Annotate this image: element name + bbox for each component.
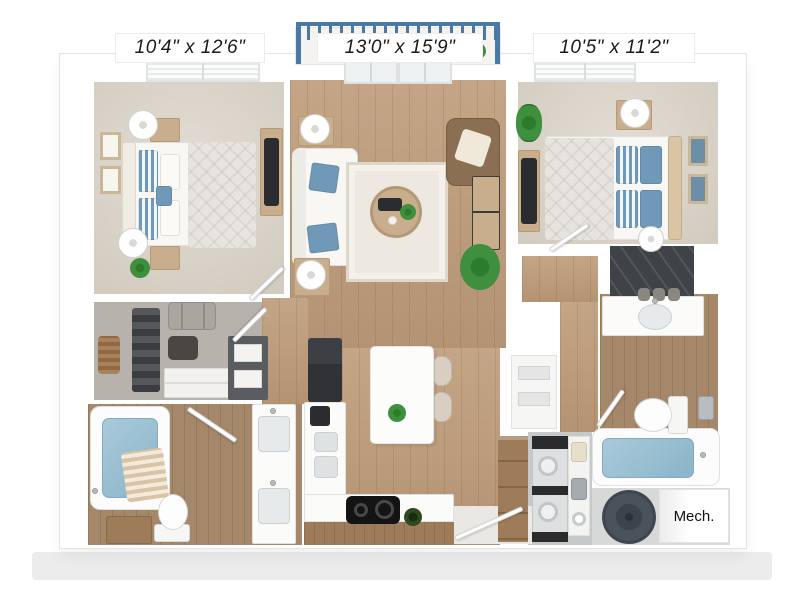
faucet-vanity-2 [652, 298, 658, 304]
bed-left-pillow-accent [156, 186, 172, 206]
bed-left-duvet [188, 142, 256, 248]
bed-right-duvet [545, 138, 614, 240]
bathtub-2-faucet [700, 452, 706, 458]
laundry-hose-outlet [572, 512, 586, 526]
plant-bedroom-right [516, 104, 542, 142]
washer-dryer-band-top [532, 436, 568, 449]
closet-suitcase [168, 302, 216, 330]
plant-by-stove [404, 508, 422, 526]
wall-art-left-2 [100, 166, 121, 194]
stove-burner-large [375, 500, 394, 519]
lamp-right-top [620, 98, 650, 128]
wall-art-right-1 [688, 136, 708, 166]
pantry-cabinet [498, 436, 528, 542]
linen-closet-right-shelf-1 [518, 366, 550, 380]
closet-hanging-clothes [132, 308, 160, 392]
closet-right-shoe-1 [638, 288, 650, 301]
coffee-table-tray [378, 198, 402, 211]
closet-basket [98, 336, 120, 374]
plant-living-corner [460, 244, 500, 290]
balcony-rail-right [495, 22, 500, 64]
lamp-right-bottom [638, 226, 664, 252]
nightstand-left-bottom [150, 246, 180, 270]
vanity-1-sink-top [258, 416, 290, 452]
floor-plan: 10'4" x 12'6" 13'0" x 15'9" 10'5" x 11'2… [0, 0, 800, 600]
faucet-vanity-1-bottom [270, 480, 276, 486]
lamp-left-top [128, 110, 158, 140]
lamp-living-top [300, 114, 330, 144]
kitchen-island [370, 346, 434, 444]
bathtub-2-water [602, 438, 694, 478]
sofa-back [292, 148, 306, 266]
bath-2-wall-cabinet [698, 396, 714, 420]
lamp-living-bottom [296, 260, 326, 290]
coffee-table-plant [400, 204, 416, 220]
coffee-maker [310, 406, 330, 426]
toilet-2-bowl [634, 398, 672, 432]
linen-closet-right-shelf-2 [518, 392, 550, 406]
tv-bedroom-right [521, 158, 537, 224]
bed-right-pillow-blue-1 [640, 146, 662, 184]
dryer-door [538, 502, 558, 522]
coffee-table-candle [388, 216, 397, 225]
detergent-box-1 [571, 442, 587, 462]
closet-seat [168, 336, 198, 360]
dimension-tab-bedroom-left: 10'4" x 12'6" [116, 34, 264, 62]
bed-right-pillow-blue-2 [640, 190, 662, 228]
washer-dryer-band-middle [532, 486, 568, 495]
toilet-1-bowl [158, 494, 188, 530]
linen-closet-hall-box-1 [234, 344, 262, 362]
wall-art-right-2 [688, 174, 708, 204]
water-heater [602, 490, 656, 544]
sofa-pillow-1 [308, 162, 340, 194]
floor-hall-left [262, 298, 308, 404]
bed-right-headboard [668, 136, 682, 240]
stove-burner-small [354, 503, 368, 517]
sofa-pillow-2 [306, 222, 339, 253]
dimension-label-bedroom-left: 10'4" x 12'6" [135, 37, 246, 59]
mech-label: Mech. [674, 508, 715, 525]
bath-1-bench [106, 516, 152, 544]
bed-right-pillow-striped-2 [616, 190, 638, 228]
island-plant [388, 404, 406, 422]
dimension-tab-bedroom-right: 10'5" x 11'2" [534, 34, 694, 62]
bar-stool-1 [434, 356, 452, 386]
floor-hall-upper-right [522, 256, 598, 302]
linen-closet-hall-box-2 [234, 370, 262, 388]
console-table [472, 176, 500, 250]
dimension-label-bedroom-right: 10'5" x 11'2" [559, 37, 668, 59]
kitchen-cabinet-front [304, 522, 454, 545]
mech-label-box: Mech. [660, 490, 728, 542]
closet-drawer-unit [164, 368, 230, 398]
ground-shadow [32, 552, 772, 580]
bar-stool-2 [434, 392, 452, 422]
kitchen-sink-basin-2 [314, 456, 338, 478]
balcony-rail-left [296, 22, 301, 64]
bed-left-pillow-striped-1 [138, 150, 158, 192]
plant-bedroom-left [130, 258, 150, 278]
kitchen-sink-basin-1 [314, 432, 338, 452]
vanity-1-sink-bottom [258, 488, 290, 524]
refrigerator [308, 338, 342, 402]
faucet-vanity-1-top [270, 408, 276, 414]
vanity-2-sink [638, 304, 672, 330]
lamp-left-bottom [118, 228, 148, 258]
shower-curtain-towel [121, 447, 170, 502]
dimension-tab-living-room: 13'0" x 15'9" [318, 34, 482, 62]
detergent-box-2 [571, 478, 587, 500]
shower-fixture [92, 488, 98, 494]
dimension-label-living-room: 13'0" x 15'9" [345, 37, 456, 59]
closet-right-shoe-3 [668, 288, 680, 301]
tv-bedroom-left [264, 138, 279, 206]
bed-left-pillow-white-1 [160, 154, 180, 190]
washer-dryer-band-bottom [532, 532, 568, 542]
bed-right-pillow-striped-1 [616, 146, 638, 184]
floor-hall-lower-right [560, 302, 598, 432]
washer-door [538, 456, 558, 476]
wall-art-left-1 [100, 132, 121, 160]
